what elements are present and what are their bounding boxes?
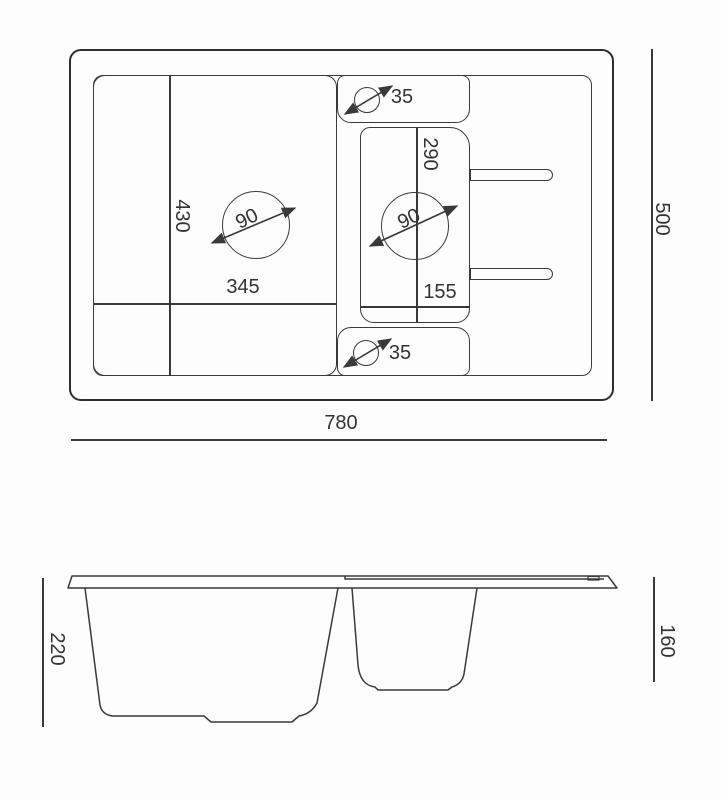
tap-hole-circle-bottom [353,340,379,366]
main-bowl-outline [93,75,337,376]
sink-technical-drawing: 780 500 430 345 90 290 155 90 35 35 220 … [0,0,721,800]
overall-depth-label: 500 [652,202,672,235]
side-countertop-slab [68,576,617,588]
side-main-bowl-profile [85,588,338,722]
small-bowl-width-reference-line [360,306,470,308]
overall-width-label: 780 [324,413,357,433]
main-bowl-width-reference-line [93,303,337,305]
side-small-bowl-profile [352,588,477,690]
side-small-depth-dimension-line [653,577,655,682]
drainer-groove-bottom [470,268,553,280]
main-bowl-width-label: 345 [226,277,259,297]
tap-hole-circle-top [354,87,380,113]
side-drainer-surface-line [345,576,604,579]
tap-hole-top-diameter-label: 35 [391,87,413,107]
side-small-bowl-depth-label: 160 [657,624,677,657]
main-bowl-depth-label: 430 [172,199,192,232]
small-bowl-width-label: 155 [423,282,456,302]
tap-hole-bottom-diameter-label: 35 [389,343,411,363]
side-main-depth-dimension-line [42,578,44,727]
drainer-groove-top [470,169,553,181]
side-drainer-end-step [588,577,599,581]
small-bowl-depth-label: 290 [420,137,440,170]
overall-width-dimension-line [71,439,607,441]
side-main-bowl-depth-label: 220 [47,632,67,665]
